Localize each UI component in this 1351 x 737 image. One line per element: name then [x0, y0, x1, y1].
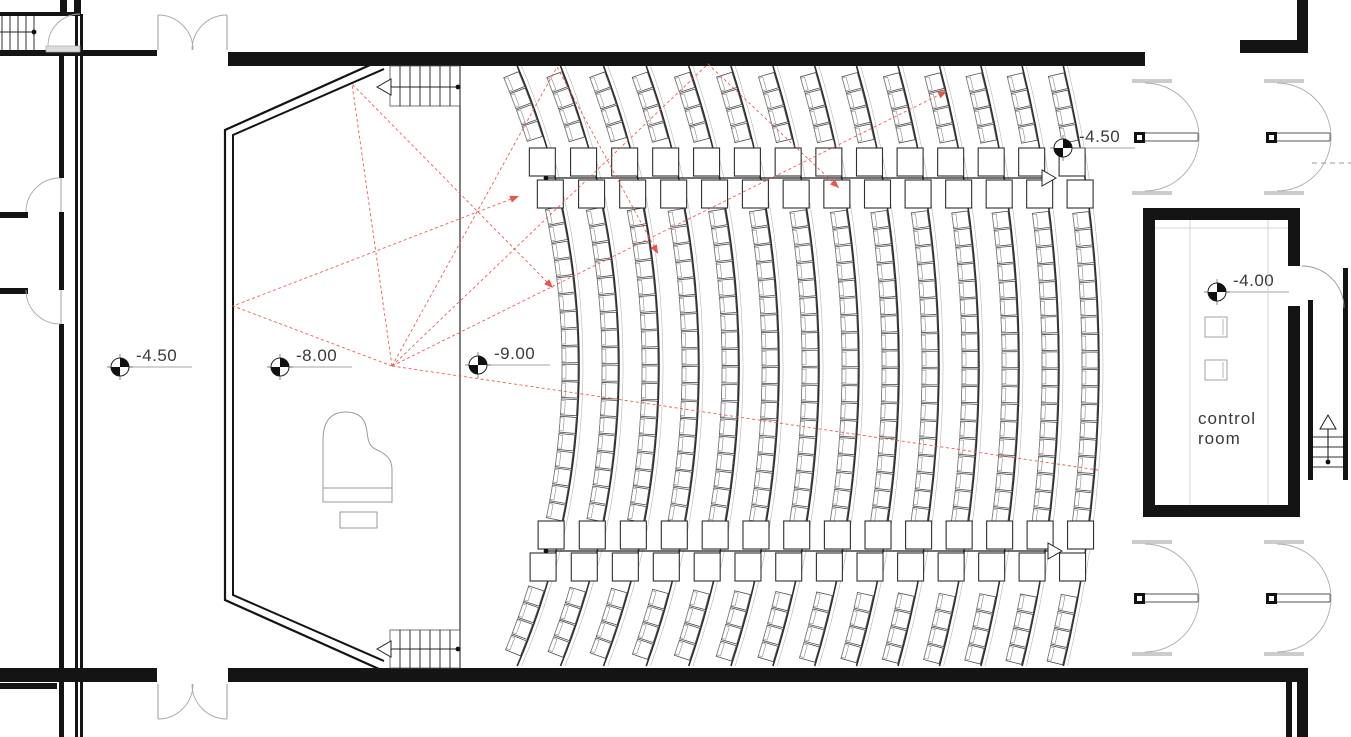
seat: [1040, 299, 1057, 316]
seat: [840, 298, 857, 315]
seat: [992, 211, 1010, 229]
seat: [961, 386, 977, 402]
seat: [681, 384, 697, 400]
seat: [936, 593, 955, 612]
aisle-step: [742, 180, 768, 208]
aisle-step: [653, 553, 679, 581]
wall: [59, 324, 64, 737]
seat: [1082, 387, 1098, 403]
seat: [674, 243, 692, 261]
seat: [922, 369, 938, 385]
wall: [1143, 505, 1300, 517]
seat: [641, 383, 657, 399]
seat: [762, 350, 778, 366]
seat: [1047, 645, 1066, 664]
aisle-step: [857, 553, 883, 581]
left-doors: [26, 178, 61, 324]
seat: [965, 645, 984, 664]
wall: [228, 668, 1308, 682]
seat: [773, 123, 792, 142]
seat: [1010, 628, 1029, 647]
seat: [887, 627, 906, 646]
aisle-step: [530, 553, 556, 581]
aisle-step: [938, 553, 964, 581]
seat: [721, 332, 737, 348]
seat: [597, 434, 614, 451]
seat: [561, 382, 577, 398]
seat: [1082, 370, 1098, 386]
seat: [795, 245, 813, 263]
seat: [996, 473, 1013, 490]
seat: [754, 471, 772, 489]
seat: [854, 592, 873, 611]
seat: [920, 421, 937, 438]
seat: [602, 348, 618, 364]
wall: [1286, 682, 1292, 737]
seat: [846, 90, 865, 109]
aisle-step: [986, 180, 1012, 208]
seat: [999, 439, 1016, 456]
aisle-step: [897, 148, 923, 176]
seat: [709, 209, 727, 227]
aisle-dot: [544, 549, 549, 554]
door-swing-arc: [1145, 137, 1199, 191]
seat: [919, 281, 936, 298]
vestibule-door: [1132, 81, 1199, 193]
aisle-step: [898, 553, 924, 581]
seat: [600, 400, 617, 417]
seat: [994, 491, 1012, 509]
seat: [875, 472, 893, 490]
seat: [878, 438, 895, 455]
seat: [875, 245, 893, 263]
seat: [668, 208, 686, 226]
aisle-step: [1067, 180, 1093, 208]
seat: [846, 626, 866, 646]
aisle-step: [946, 180, 972, 208]
wall: [59, 212, 64, 290]
seat: [642, 348, 658, 364]
seat: [1080, 422, 1097, 439]
seat: [871, 210, 889, 228]
seat: [711, 488, 729, 506]
seat: [970, 90, 989, 109]
seat: [633, 469, 651, 487]
seat: [722, 349, 738, 365]
seat: [756, 454, 774, 472]
seat: [679, 418, 696, 435]
seat: [881, 316, 898, 333]
seat: [597, 277, 615, 295]
seat: [881, 386, 897, 402]
seat: [928, 627, 947, 646]
seat: [1079, 439, 1096, 456]
seat: [1052, 90, 1071, 109]
door-swing-arc: [1277, 137, 1331, 191]
aisle-step: [579, 521, 605, 549]
seat: [1082, 352, 1098, 368]
aisle-dot: [544, 176, 549, 181]
aisle-step: [1068, 521, 1094, 549]
seat: [1081, 404, 1098, 421]
aisle-step: [694, 148, 720, 176]
seat: [973, 611, 992, 630]
seat: [961, 404, 978, 421]
double-door-top: [158, 15, 227, 50]
seat: [1002, 334, 1018, 350]
aisle-step: [571, 148, 597, 176]
seat: [841, 315, 858, 332]
double-door-bottom: [158, 684, 227, 719]
seat: [1041, 404, 1058, 421]
seat: [557, 433, 575, 451]
aisle-step: [734, 148, 760, 176]
stage-stair: [377, 630, 460, 668]
seat: [920, 298, 937, 315]
right-stairwell-stair: [1313, 415, 1343, 467]
aisle-step: [661, 180, 687, 208]
seat: [838, 437, 855, 454]
seat: [1042, 334, 1058, 350]
seat: [590, 486, 608, 504]
seat: [761, 402, 778, 419]
seat: [681, 314, 698, 331]
seat: [881, 403, 898, 420]
seat: [768, 608, 788, 628]
wall: [1288, 306, 1300, 517]
stage-stair: [377, 66, 460, 106]
seat: [830, 210, 848, 228]
control-room: controlroom: [1155, 220, 1288, 505]
seat: [921, 403, 938, 420]
seat: [1014, 611, 1033, 630]
stair-up-arrow: [1320, 415, 1336, 429]
seat: [671, 226, 689, 244]
seat: [562, 364, 578, 380]
door-swing-arc: [158, 15, 193, 50]
seat: [549, 224, 568, 243]
seat: [997, 456, 1014, 473]
aisle-step: [735, 553, 761, 581]
seat: [721, 384, 737, 400]
aisle-step: [743, 521, 769, 549]
seat: [952, 211, 970, 229]
seat: [851, 107, 870, 126]
seat: [1079, 282, 1096, 299]
aisle-step: [864, 180, 890, 208]
seat: [560, 311, 577, 328]
seat-row: [590, 66, 663, 666]
seat: [914, 228, 932, 246]
level-value: -9.00: [494, 344, 535, 363]
seat: [681, 401, 698, 418]
seat: [630, 225, 648, 243]
aisle-step: [775, 148, 801, 176]
seat: [1007, 73, 1026, 92]
seat: [690, 590, 710, 610]
seat: [810, 107, 829, 126]
aisle-step: [816, 148, 842, 176]
seat: [913, 490, 931, 508]
seat: [752, 227, 770, 245]
seat: [559, 416, 576, 433]
wall: [80, 14, 83, 737]
seat: [690, 123, 710, 143]
seat: [959, 281, 976, 298]
seat: [633, 243, 651, 261]
seat: [601, 330, 618, 347]
aisle-step: [978, 148, 1004, 176]
aisle-step: [1019, 148, 1045, 176]
seat: [953, 490, 971, 508]
seat: [1002, 369, 1018, 385]
seat: [636, 452, 654, 470]
seat: [1015, 107, 1034, 126]
seat: [678, 436, 695, 453]
aisle-step: [784, 521, 810, 549]
seat: [758, 437, 775, 454]
seat: [966, 73, 985, 92]
seat: [835, 245, 853, 263]
seat: [797, 262, 814, 279]
seat: [1078, 264, 1095, 281]
seat: [962, 334, 978, 350]
aisle-step: [906, 521, 932, 549]
seat: [895, 593, 914, 612]
walls: [0, 0, 1351, 737]
seat: [883, 73, 903, 93]
seat: [593, 469, 611, 487]
seat: [882, 333, 898, 349]
seat: [937, 124, 956, 143]
aisle-step: [620, 521, 646, 549]
seat: [721, 402, 738, 419]
wall: [59, 50, 64, 178]
seat: [668, 505, 686, 523]
seat: [802, 350, 818, 366]
seat: [719, 296, 736, 313]
seat: [1074, 491, 1092, 509]
seat: [1037, 456, 1054, 473]
seat: [1002, 387, 1018, 403]
aisle-step: [537, 180, 563, 208]
seat: [1000, 299, 1017, 316]
seat: [716, 453, 734, 471]
aisle-step: [529, 148, 555, 176]
seat: [671, 487, 689, 505]
piano-keyboard: [323, 488, 392, 502]
seat: [602, 365, 618, 381]
seat: [716, 261, 734, 279]
seat: [882, 368, 898, 384]
seat: [850, 609, 869, 628]
seat: [768, 106, 788, 126]
seat: [921, 316, 938, 333]
door-leaf: [46, 46, 80, 52]
seat: [801, 315, 818, 332]
seat: [719, 419, 736, 436]
seat: [896, 124, 915, 143]
door-swing-arc: [158, 684, 193, 719]
aisle-step: [783, 180, 809, 208]
seat: [801, 333, 817, 349]
seat: [593, 242, 611, 260]
seat: [676, 261, 694, 279]
level-marker: -8.00: [267, 346, 352, 380]
wall: [0, 668, 157, 682]
seat: [674, 470, 692, 488]
seat: [557, 276, 575, 294]
seat: [1039, 282, 1056, 299]
seat: [752, 488, 770, 506]
seat: [1036, 246, 1053, 263]
seat: [559, 294, 576, 311]
seat: [550, 485, 568, 503]
seat: [678, 278, 695, 295]
aisle-step: [816, 553, 842, 581]
door-swing-arc: [1145, 83, 1199, 137]
aisle-step: [702, 180, 728, 208]
seat: [796, 454, 813, 471]
seat: [1081, 317, 1097, 333]
seat: [955, 473, 973, 491]
vestibule-door: [1264, 81, 1331, 193]
seat: [1036, 474, 1053, 491]
level-value: -8.00: [296, 346, 337, 365]
wall: [1297, 0, 1308, 53]
seat: [1076, 474, 1093, 491]
seat: [758, 279, 775, 296]
aisle-step: [776, 553, 802, 581]
seat: [1001, 404, 1018, 421]
seat: [586, 207, 605, 226]
stair-direction-dot: [1326, 460, 1331, 465]
aisle-step: [694, 553, 720, 581]
seat: [1011, 90, 1030, 109]
piano-bench: [340, 512, 377, 528]
seat: [1042, 352, 1058, 368]
seat: [792, 489, 810, 507]
vestibule-door: [1132, 542, 1199, 654]
wall: [1297, 672, 1308, 737]
seat: [873, 228, 891, 246]
seat: [1042, 387, 1058, 403]
aisle-step: [1019, 553, 1045, 581]
door-swing-arc: [1145, 598, 1199, 652]
level-marker: -9.00: [465, 344, 550, 378]
seat: [545, 206, 564, 225]
seat: [639, 295, 656, 312]
floor-plan-svg: -4.50-8.00-9.00-4.50-4.00controlroom: [0, 0, 1351, 737]
seat: [877, 455, 894, 472]
seat-row: [674, 66, 743, 666]
seat: [1006, 645, 1025, 664]
acoustic-ray: [233, 196, 519, 366]
door-swing-arc: [1277, 598, 1331, 652]
seat: [754, 244, 772, 262]
seat: [962, 369, 978, 385]
seat: [814, 124, 833, 143]
seat: [682, 366, 698, 382]
seat: [873, 490, 891, 508]
stage-shell-outer: [225, 61, 379, 669]
control-room-chair: [1205, 317, 1227, 337]
seat: [731, 123, 750, 142]
seat: [562, 347, 578, 363]
seat: [1038, 264, 1055, 281]
seat: [837, 455, 854, 472]
seat: [682, 349, 698, 365]
seat: [839, 280, 856, 297]
seat: [714, 471, 732, 489]
seat: [718, 436, 735, 453]
seat: [911, 211, 929, 229]
wall: [74, 0, 81, 14]
seat: [639, 418, 656, 435]
level-value: -4.50: [136, 346, 177, 365]
seat: [761, 315, 778, 332]
aisle-step: [856, 148, 882, 176]
seat: [552, 241, 570, 259]
seat: [957, 456, 974, 473]
seat: [961, 316, 978, 333]
seat: [631, 487, 649, 505]
door-swing-arc: [26, 290, 60, 324]
seat: [627, 208, 646, 227]
seat: [599, 295, 616, 312]
wall: [1288, 208, 1300, 266]
seat: [922, 334, 938, 350]
piano-body: [323, 412, 392, 488]
seat-row: [716, 66, 783, 666]
seat: [801, 402, 818, 419]
seat: [1048, 73, 1067, 92]
seat: [891, 610, 910, 629]
seat: [880, 298, 897, 315]
seat: [749, 209, 767, 227]
seat: [676, 453, 694, 471]
seat: [712, 226, 730, 244]
seat: [932, 610, 951, 629]
seat: [996, 246, 1013, 263]
seat: [833, 228, 851, 246]
seat: [916, 246, 934, 264]
aisle-step: [612, 553, 638, 581]
door-swing-arc: [26, 178, 60, 212]
door-swing-arc: [192, 15, 227, 50]
seat: [933, 107, 952, 126]
aisle-step: [1027, 180, 1053, 208]
seat: [835, 472, 853, 490]
seat: [977, 594, 996, 613]
seat: [1058, 594, 1077, 613]
seat: [546, 502, 565, 521]
seat: [960, 299, 977, 316]
seat: [731, 591, 750, 610]
ray-arrowhead: [509, 196, 519, 203]
seat: [842, 368, 858, 384]
door-swing-arc: [1277, 83, 1331, 137]
seat: [637, 278, 654, 295]
seat: [925, 73, 944, 92]
seat: [882, 351, 898, 367]
seat: [917, 263, 934, 280]
seat: [1080, 299, 1097, 316]
seat: [969, 628, 988, 647]
control-room-label: control: [1198, 409, 1256, 428]
seat: [922, 351, 938, 367]
seat: [1018, 594, 1037, 613]
